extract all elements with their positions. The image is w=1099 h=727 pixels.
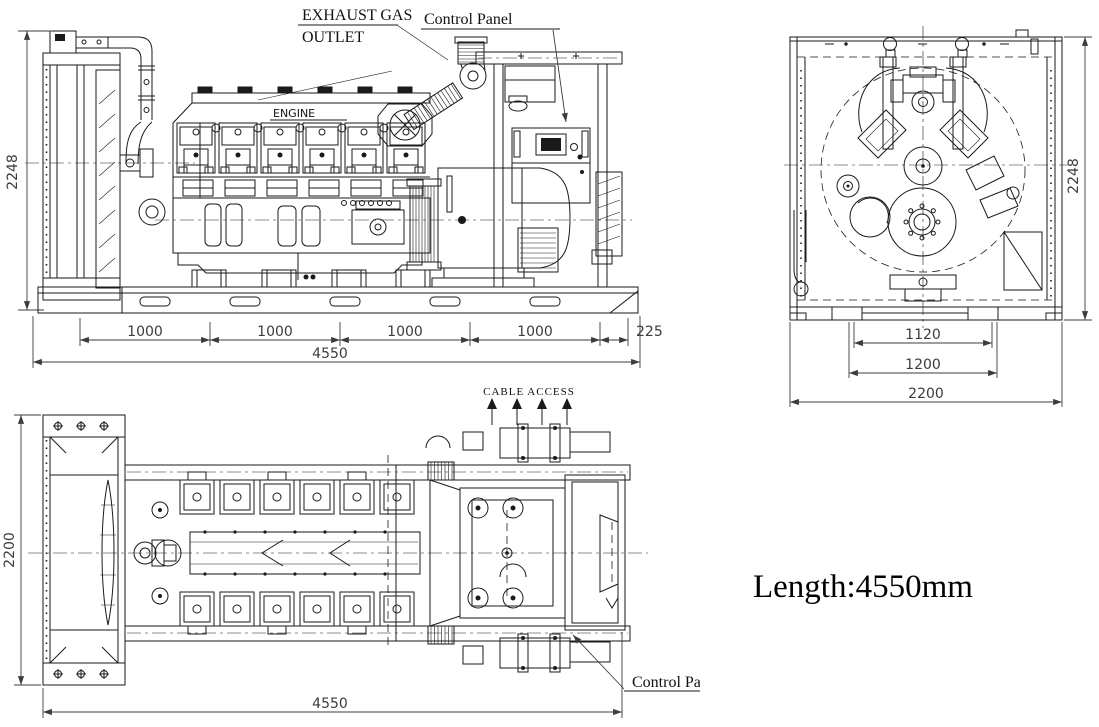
side-dimensions: 2248 1000 1000 1000 1000 225 4550 — [5, 31, 663, 368]
coolant-pipe — [108, 37, 155, 164]
side-seg1-dim: 1000 — [127, 324, 163, 340]
end-view: 2248 1120 1200 2200 — [770, 20, 1099, 415]
engine-label: ENGINE — [273, 107, 315, 120]
spec-length: Length:4550mm — [753, 557, 1099, 617]
exhaust-gas-outlet-label-line1: EXHAUST GAS — [302, 7, 412, 24]
control-panel-callout: Control Panel — [573, 635, 700, 691]
end-overall-dim: 2200 — [908, 386, 944, 402]
alternator-plan — [426, 424, 625, 672]
end-height-dim: 2248 — [1066, 158, 1082, 194]
drawing-sheet: EXHAUST GAS OUTLET Control Panel ENGINE … — [0, 0, 1099, 727]
end-base-dim: 1200 — [905, 357, 941, 373]
radiator-plan — [43, 415, 125, 685]
cable-access-label: CABLE ACCESS — [483, 386, 575, 398]
end-frame — [790, 30, 1062, 320]
control-panel-label-bottom: Control Panel — [632, 674, 700, 691]
base-skid-side — [38, 287, 638, 313]
side-seg3-dim: 1000 — [387, 324, 423, 340]
plan-dimensions: 2200 4550 — [2, 415, 622, 718]
plan-view: CABLE ACCESS Control Panel 2200 4 — [0, 380, 700, 727]
enclosure-frame — [476, 52, 622, 287]
side-seg2-dim: 1000 — [257, 324, 293, 340]
control-panel-box — [512, 128, 590, 272]
side-height-dim: 2248 — [5, 154, 21, 190]
side-overall-dim: 4550 — [312, 346, 348, 362]
radiator-side — [43, 31, 120, 300]
side-view: EXHAUST GAS OUTLET Control Panel ENGINE … — [0, 0, 700, 380]
side-seg4-dim: 1000 — [517, 324, 553, 340]
plan-overall-dim: 4550 — [312, 696, 348, 712]
cable-access: CABLE ACCESS — [483, 386, 575, 425]
engine-end — [794, 57, 1042, 301]
exhaust-gas-outlet-label-line2: OUTLET — [302, 29, 364, 46]
spec-block: Length:4550mm Width: 2200mm Height:2248m… — [753, 437, 1099, 727]
end-inner-dim: 1120 — [905, 327, 941, 343]
control-panel-label-top: Control Panel — [424, 11, 513, 28]
plan-width-dim: 2200 — [2, 532, 18, 568]
